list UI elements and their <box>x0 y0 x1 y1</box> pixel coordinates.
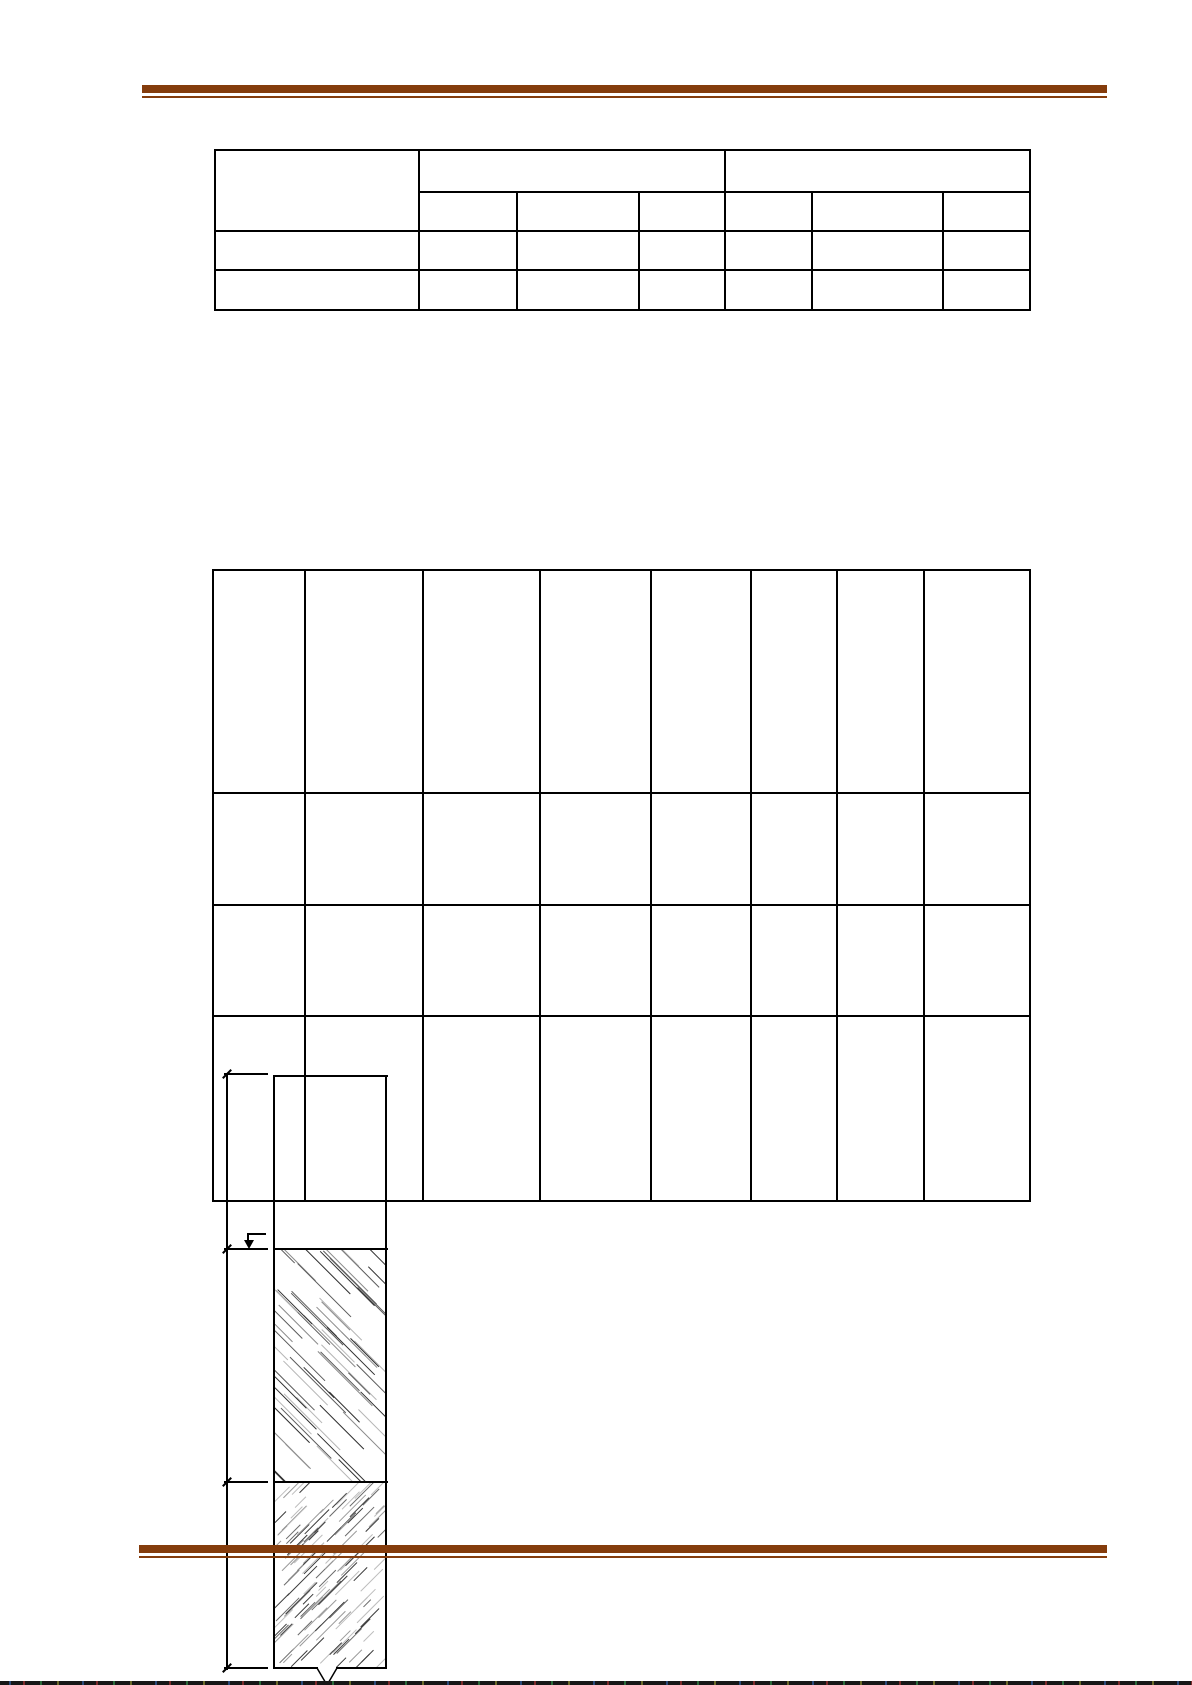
table-cell <box>751 570 837 793</box>
document-page <box>0 0 1192 1685</box>
table-cell <box>943 231 1030 270</box>
table-cell <box>540 793 651 905</box>
table-cell <box>213 793 305 905</box>
table-cell <box>924 570 1030 793</box>
table-cell <box>837 905 924 1016</box>
hatch-upper-stratum <box>275 1250 385 1481</box>
table-cell <box>517 192 639 231</box>
dimension-extension-line <box>224 1481 268 1483</box>
table-cell <box>305 793 423 905</box>
table-cell <box>651 1016 751 1201</box>
table-cell <box>423 905 540 1016</box>
table-cell <box>924 793 1030 905</box>
table-cell <box>837 570 924 793</box>
group-header-cell <box>419 150 725 192</box>
soil-column-right-edge <box>385 1075 387 1669</box>
page-edge-strip <box>0 1681 1192 1685</box>
top-rule-thin <box>142 96 1107 98</box>
table-cell <box>837 1016 924 1201</box>
table-cell <box>812 192 943 231</box>
table-cell <box>517 231 639 270</box>
table-cell <box>419 270 517 310</box>
table-cell <box>812 270 943 310</box>
table-cell <box>423 793 540 905</box>
table-cell <box>540 570 651 793</box>
dimension-extension-line <box>224 1073 268 1075</box>
table-cell <box>651 905 751 1016</box>
table-cell <box>924 905 1030 1016</box>
table-cell <box>215 231 419 270</box>
table-cell <box>812 231 943 270</box>
table-cell <box>305 905 423 1016</box>
table-cell <box>213 570 305 793</box>
table-cell <box>943 270 1030 310</box>
table-cell <box>751 1016 837 1201</box>
level-marker-bar <box>247 1233 266 1235</box>
table-cell <box>213 905 305 1016</box>
table-cell <box>517 270 639 310</box>
level-marker-triangle-icon <box>244 1240 254 1249</box>
table-cell <box>215 270 419 310</box>
dimension-line <box>226 1074 228 1670</box>
table-cell <box>639 231 725 270</box>
table-cell <box>305 570 423 793</box>
table-cell <box>751 793 837 905</box>
table-cell <box>924 1016 1030 1201</box>
table-cell <box>725 192 812 231</box>
header-stub-cell <box>215 150 419 231</box>
summary-table <box>214 149 1031 311</box>
table-cell <box>751 905 837 1016</box>
hatch-lower-stratum <box>275 1483 385 1667</box>
table-cell <box>419 192 517 231</box>
table-cell <box>943 192 1030 231</box>
group-header-cell <box>725 150 1030 192</box>
table-cell <box>540 1016 651 1201</box>
table-cell <box>540 905 651 1016</box>
table-cell <box>725 270 812 310</box>
table-cell <box>837 793 924 905</box>
table-cell <box>651 570 751 793</box>
table-cell <box>639 192 725 231</box>
table-cell <box>725 231 812 270</box>
bottom-rule-thin <box>139 1556 1107 1558</box>
bottom-rule-thick <box>139 1545 1107 1553</box>
main-table <box>212 569 1031 1202</box>
table-cell <box>419 231 517 270</box>
table-cell <box>423 570 540 793</box>
top-rule-thick <box>142 85 1107 93</box>
soil-column-top-edge <box>273 1075 388 1077</box>
table-cell <box>423 1016 540 1201</box>
table-cell <box>305 1016 423 1201</box>
dimension-extension-line <box>224 1667 268 1669</box>
table-cell <box>639 270 725 310</box>
table-cell <box>651 793 751 905</box>
